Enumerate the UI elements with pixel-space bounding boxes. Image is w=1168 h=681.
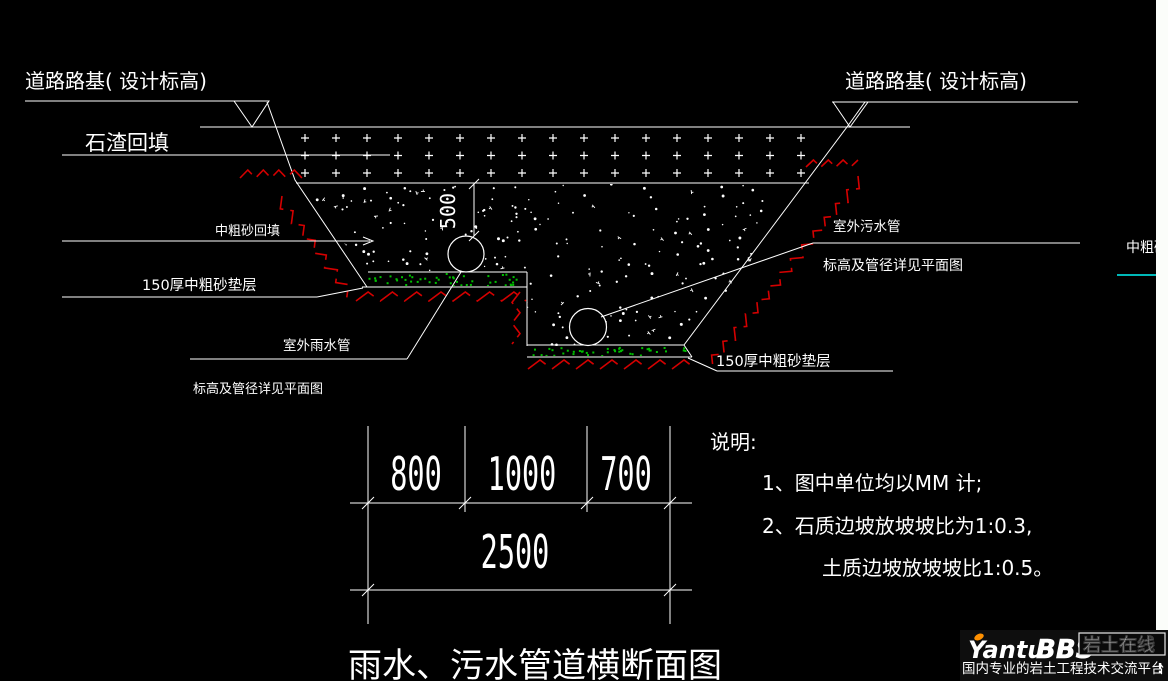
sand-dot [474, 225, 477, 228]
green-speck [390, 275, 392, 277]
sand-dot [506, 236, 508, 238]
sand-dot [528, 199, 529, 200]
sewage-pipe-note: 标高及管径详见平面图 [823, 257, 963, 274]
green-speck [438, 279, 440, 281]
sand-dot [502, 239, 505, 242]
sand-dot [737, 246, 739, 248]
sand-dot [511, 220, 513, 222]
sand-dot [633, 243, 636, 246]
sand-dot [622, 312, 625, 315]
sand-dot [372, 260, 374, 262]
green-speck [541, 354, 543, 356]
sand-dot [443, 189, 445, 191]
dim-800-text: 800 [390, 448, 442, 502]
sand-dot [493, 187, 495, 189]
sand-dot [566, 238, 568, 240]
sand-dot [342, 194, 345, 197]
sand-dot [722, 195, 725, 198]
green-speck [387, 282, 389, 284]
stone-fill-label: 石渣回填 [85, 131, 169, 155]
sand-dot [566, 336, 569, 339]
sand-dot [524, 267, 526, 269]
sand-dot [482, 210, 484, 212]
sand-dot [707, 228, 710, 231]
sand-dot [761, 200, 763, 202]
sand-dot [454, 186, 456, 188]
green-speck [405, 284, 407, 286]
green-speck [579, 350, 581, 352]
sand-dot [563, 185, 564, 186]
sand-dot [749, 214, 751, 216]
sand-dot [756, 222, 758, 224]
sand-dot [390, 222, 392, 224]
sand-dot [559, 316, 561, 318]
green-speck [471, 280, 473, 282]
sewage-pipe-label: 室外污水管 [833, 218, 901, 235]
green-speck [548, 348, 550, 350]
dim-700-text: 700 [600, 448, 652, 502]
sand-dot [676, 253, 679, 256]
sand-dot [534, 217, 537, 220]
sand-dot [316, 198, 319, 201]
sand-dot [655, 208, 658, 211]
sand-dot [363, 187, 366, 190]
sand-dot [678, 218, 680, 220]
sand-dot [531, 298, 533, 300]
green-speck [435, 282, 437, 284]
sand-dot [599, 284, 601, 286]
sand-dot [557, 312, 559, 314]
green-speck [420, 278, 422, 280]
sand-dot [616, 281, 618, 283]
green-speck [587, 354, 589, 356]
sand-dot [404, 223, 406, 225]
green-speck [647, 348, 649, 350]
sand-dot [700, 242, 702, 244]
green-speck [512, 284, 514, 286]
sand-dot [643, 187, 646, 190]
green-speck [586, 352, 588, 354]
green-speck [487, 275, 489, 277]
sand-dot [367, 253, 370, 256]
sand-dot [610, 315, 612, 317]
rain-pipe-label: 室外雨水管 [283, 337, 351, 354]
sand-dot [696, 311, 698, 313]
sand-dot [711, 258, 714, 261]
sand-dot [497, 237, 500, 240]
green-speck [552, 349, 554, 351]
green-speck [618, 351, 620, 353]
green-speck [495, 281, 497, 283]
sand-fill-label: 中粗砂回填 [215, 224, 280, 239]
sand-dot [346, 206, 348, 208]
green-speck [409, 275, 411, 277]
sand-dot [576, 295, 578, 297]
dim-2500-text: 2500 [481, 526, 550, 580]
sand-dot [601, 246, 603, 248]
sand-dot [406, 262, 409, 265]
sand-dot [557, 255, 559, 257]
note-line-1: 1、图中单位均以MM 计; [762, 471, 982, 495]
sand-dot [628, 212, 629, 213]
sand-dot [651, 272, 654, 275]
sand-dot [688, 319, 690, 321]
green-speck [533, 354, 535, 356]
sand-dot [514, 206, 516, 208]
sand-dot [517, 231, 519, 233]
logo-yantu: Yantu [968, 636, 1044, 664]
green-speck [380, 276, 382, 278]
green-speck [656, 351, 658, 353]
sand-dot [736, 206, 738, 208]
sand-dot [668, 336, 671, 339]
green-speck [450, 282, 452, 284]
sand-dot [566, 243, 567, 244]
green-speck [607, 351, 609, 353]
sand-dot [419, 263, 421, 265]
green-speck [405, 279, 407, 281]
green-speck [685, 350, 687, 352]
green-speck [516, 279, 518, 281]
green-speck [429, 281, 431, 283]
sand-dot [686, 218, 688, 220]
green-speck [489, 282, 491, 284]
sand-dot [515, 216, 517, 218]
sand-dot [760, 210, 763, 213]
sand-dot [601, 270, 603, 272]
green-speck [621, 349, 623, 351]
sand-dot [552, 323, 555, 326]
sand-dot [676, 221, 678, 223]
right-scroll-strip[interactable] [1156, 0, 1168, 681]
sand-dot [518, 239, 520, 241]
green-speck [665, 350, 667, 352]
sand-dot [402, 258, 405, 261]
green-speck [502, 274, 504, 276]
logo-cn-text: 岩土在线 [1082, 634, 1155, 656]
green-speck [436, 277, 438, 279]
sand-dot [530, 283, 532, 285]
sand-dot [707, 249, 710, 252]
sand-dot [351, 200, 353, 202]
green-speck [632, 353, 634, 355]
green-speck [573, 351, 575, 353]
sand-dot [496, 263, 499, 266]
green-speck [614, 349, 616, 351]
sand-dot [484, 266, 485, 267]
green-speck [582, 350, 584, 352]
sand-dot [465, 233, 467, 235]
green-speck [446, 273, 448, 275]
sand-dot [645, 263, 647, 265]
green-speck [411, 276, 413, 278]
note-line-3: 土质边坡放坡坡比1:0.5。 [822, 556, 1053, 580]
sand-dot [409, 190, 411, 192]
green-speck [401, 276, 403, 278]
sand-dot [674, 311, 675, 312]
sand-dot [470, 230, 472, 232]
sand-dot [512, 205, 514, 207]
sand-dot [425, 252, 428, 255]
green-speck [396, 279, 398, 281]
road-label-right: 道路路基( 设计标高) [845, 69, 1027, 93]
green-speck [463, 275, 465, 277]
sand-dot [704, 297, 707, 300]
green-speck [664, 347, 666, 349]
sand-dot [583, 194, 586, 197]
green-speck [562, 353, 564, 355]
green-speck [374, 277, 376, 279]
sand-dot [386, 192, 388, 194]
sand-dot [485, 258, 487, 260]
sand-dot [534, 228, 537, 231]
sand-dot [547, 218, 549, 220]
sand-dot [742, 185, 744, 187]
sand-dot [382, 227, 384, 229]
bedding-left-label: 150厚中粗砂垫层 [142, 277, 257, 294]
sand-dot [562, 326, 564, 328]
logo-tagline: 国内专业的岩土工程技术交流平台 [962, 660, 1165, 677]
bedding-right-label: 150厚中粗砂垫层 [716, 353, 831, 370]
sand-dot [738, 237, 741, 240]
sand-dot [704, 206, 706, 208]
sand-dot [607, 336, 609, 338]
rain-pipe-note: 标高及管径详见平面图 [193, 381, 323, 397]
sand-dot [588, 268, 590, 270]
green-speck [424, 278, 426, 280]
sand-dot [703, 213, 706, 216]
note-line-2: 2、石质边坡放坡坡比为1:0.3, [762, 514, 1032, 538]
sand-dot [362, 250, 365, 253]
notes-heading: 说明: [710, 430, 757, 454]
sand-dot [478, 212, 480, 214]
sand-dot [505, 256, 507, 258]
sand-dot [619, 319, 622, 322]
green-speck [375, 280, 377, 282]
sand-dot [341, 208, 343, 210]
sand-dot [397, 202, 399, 204]
sand-dot [524, 208, 526, 210]
green-speck [650, 350, 652, 352]
green-speck [567, 350, 569, 352]
sand-dot [625, 275, 627, 277]
green-speck [470, 284, 472, 286]
green-speck [505, 274, 507, 276]
sand-dot [650, 196, 652, 198]
green-speck [449, 276, 451, 278]
sand-dot [404, 187, 407, 190]
green-speck [452, 276, 454, 278]
sand-dot [680, 323, 683, 326]
sand-dot [751, 189, 754, 192]
green-speck [510, 284, 512, 286]
sand-dot [702, 262, 705, 265]
sand-dot [539, 224, 540, 225]
green-speck [683, 350, 685, 352]
sand-dot [402, 204, 404, 206]
sand-dot [491, 198, 493, 200]
sand-dot [589, 290, 591, 292]
sand-dot [618, 259, 620, 261]
dim-1000-text: 1000 [488, 448, 557, 502]
green-speck [460, 284, 462, 286]
sand-dot [342, 197, 344, 199]
road-label-left: 道路路基( 设计标高) [25, 69, 207, 93]
sand-dot [452, 186, 454, 188]
sand-dot [682, 282, 684, 284]
sand-dot [628, 335, 630, 337]
sand-dot [373, 251, 375, 253]
sand-dot [720, 186, 723, 189]
sand-dot [389, 197, 392, 200]
sand-dot [572, 212, 574, 214]
sand-dot [556, 242, 558, 244]
sand-dot [425, 230, 426, 231]
green-speck [683, 347, 685, 349]
green-speck [607, 348, 609, 350]
sand-dot [429, 197, 431, 199]
sand-dot [722, 224, 723, 225]
sand-dot [653, 229, 655, 231]
sand-dot [354, 231, 356, 233]
sand-dot [355, 244, 357, 246]
section-drawing: 500 800 1000 700 2500 道路路基( 设计标高) 道路路基( … [0, 0, 1168, 681]
dim-500-text: 500 [436, 193, 460, 229]
green-speck [592, 352, 594, 354]
sand-dot [685, 278, 687, 280]
green-speck [641, 347, 643, 349]
green-speck [466, 284, 468, 286]
sand-dot [636, 311, 638, 313]
drawing-title: 雨水、污水管道横断面图 [348, 646, 722, 681]
sand-dot [530, 212, 532, 214]
sand-dot [699, 263, 701, 265]
sand-dot [514, 186, 516, 188]
sand-dot [429, 270, 430, 271]
green-speck [417, 281, 419, 283]
sand-dot [737, 258, 740, 261]
sand-dot [494, 257, 496, 259]
sand-dot [599, 229, 601, 231]
sand-dot [370, 200, 372, 202]
sand-dot [659, 251, 660, 252]
sand-dot [409, 250, 411, 252]
sand-dot [628, 263, 631, 266]
sand-dot [681, 241, 683, 243]
sand-dot [535, 311, 536, 312]
green-speck [509, 279, 511, 281]
sand-dot [425, 238, 427, 240]
rain-pipe-circle [448, 236, 484, 272]
sand-dot [635, 320, 637, 322]
sand-dot [432, 219, 434, 221]
green-speck [369, 278, 371, 280]
sand-dot [742, 202, 744, 204]
cad-canvas: 500 800 1000 700 2500 道路路基( 设计标高) 道路路基( … [0, 0, 1168, 681]
sand-dot [735, 216, 737, 218]
sand-dot [388, 260, 390, 262]
sand-dot [515, 213, 517, 215]
watermark-logo: Yantu BBS 岩土在线 国内专业的岩土工程技术交流平台 ! [960, 630, 1168, 681]
green-speck [456, 281, 458, 283]
sand-dot [558, 203, 559, 204]
sand-dot [550, 274, 553, 277]
green-speck [618, 348, 620, 350]
sand-dot [484, 215, 486, 217]
sand-dot [697, 245, 700, 248]
green-speck [629, 353, 631, 355]
green-speck [534, 349, 536, 351]
green-speck [505, 284, 507, 286]
sand-dot [620, 257, 622, 259]
green-speck [512, 282, 514, 284]
sand-dot [555, 191, 557, 193]
green-speck [573, 353, 575, 355]
sand-dot [648, 264, 650, 266]
green-speck [561, 347, 563, 349]
green-speck [513, 276, 515, 278]
sand-dot [366, 263, 368, 265]
green-speck [410, 281, 412, 283]
sand-dot [674, 232, 677, 235]
sand-dot [729, 240, 731, 242]
sand-dot [619, 306, 621, 308]
sewage-pipe-circle [570, 309, 607, 346]
sand-dot [633, 215, 635, 217]
logo-tagline-mark: ! [1157, 661, 1163, 677]
